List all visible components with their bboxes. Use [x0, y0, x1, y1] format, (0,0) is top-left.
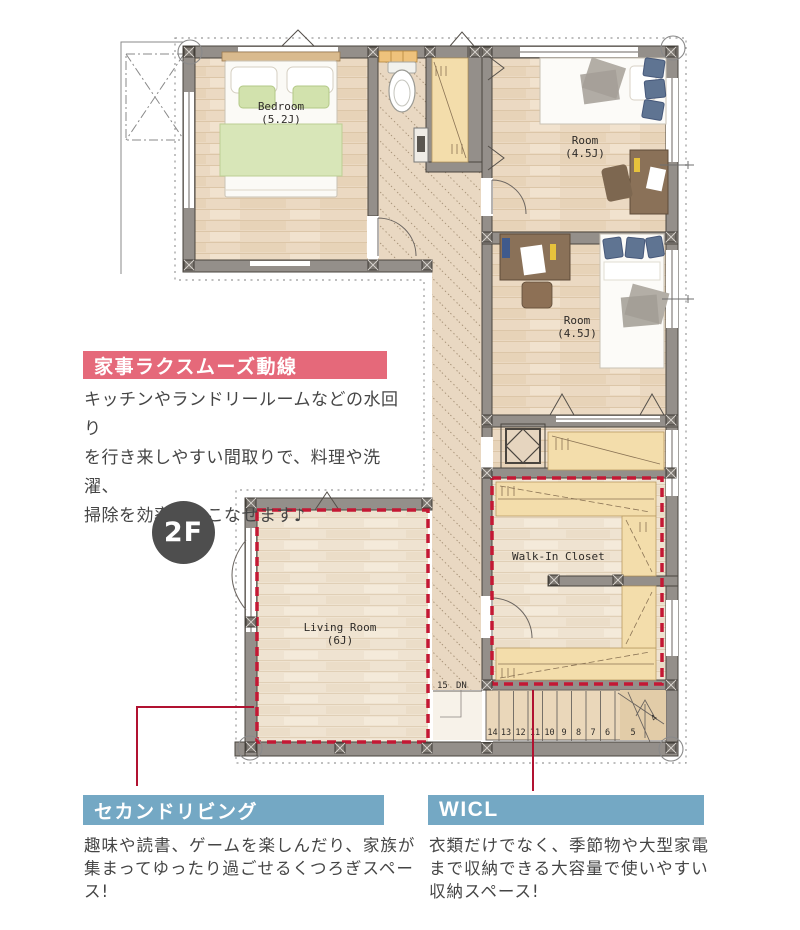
page: Bedroom (5.2J) Room (4.5J) Room ( [0, 0, 800, 930]
stair-down-label: DN [456, 681, 467, 691]
hall-closet [432, 58, 468, 162]
bedroom-name: Bedroom [258, 100, 305, 113]
stair-landing [433, 691, 482, 740]
svg-text:12: 12 [515, 728, 525, 738]
bedroom-size: (5.2J) [261, 113, 301, 126]
stairs: 14 13 12 11 10 9 8 7 6 5 4 15 DN [433, 681, 666, 742]
wicl-body-text: 衣類だけでなく、季節物や大型家電 まで収納できる大容量で使いやすい 収納スペース… [429, 834, 728, 903]
second-living-body-text: 趣味や読書、ゲームを楽しんだり、家族が 集まってゆったり過ごせるくつろぎスペース… [84, 834, 423, 903]
living-name: Living Room [304, 621, 377, 634]
svg-text:14: 14 [487, 728, 497, 738]
hall-floor [378, 172, 482, 260]
wicl-title-banner: WICL [428, 795, 704, 825]
washstand-icon [414, 128, 428, 162]
svg-text:11: 11 [530, 728, 540, 738]
svg-text:9: 9 [561, 728, 566, 738]
living-size: (6J) [327, 634, 354, 647]
kaji-body-text: キッチンやランドリールームなどの水回り を行き来しやすい間取りで、料理や洗濯、 … [84, 386, 413, 531]
strip-closet [548, 432, 664, 470]
svg-text:10: 10 [544, 728, 554, 738]
callout-second-living: セカンドリビング 趣味や読書、ゲームを楽しんだり、家族が 集まってゆったり過ごせ… [83, 795, 423, 903]
svg-text:7: 7 [590, 728, 595, 738]
room1-name: Room [572, 134, 599, 147]
svg-text:13: 13 [501, 728, 511, 738]
corridor-floor [432, 260, 482, 690]
callout-wicl: WICL 衣類だけでなく、季節物や大型家電 まで収納できる大容量で使いやすい 収… [428, 795, 728, 903]
room1-size: (4.5J) [565, 147, 605, 160]
floor-badge: 2F [152, 501, 215, 564]
bedroom-label: Bedroom (5.2J) [258, 100, 305, 126]
room2-size: (4.5J) [557, 327, 597, 340]
stair-landing-number: 15 [437, 681, 448, 691]
svg-text:6: 6 [605, 728, 610, 738]
svg-text:8: 8 [576, 728, 581, 738]
wic-label: Walk-In Closet [512, 550, 605, 563]
second-living-title-banner: セカンドリビング [83, 795, 384, 825]
room2-name: Room [564, 314, 591, 327]
kaji-title-banner: 家事ラクスムーズ動線 [83, 351, 387, 379]
callout-kaji: 家事ラクスムーズ動線 キッチンやランドリールームなどの水回り を行き来しやすい間… [83, 351, 413, 531]
svg-text:5: 5 [630, 728, 635, 738]
shaft-icon [501, 424, 545, 468]
